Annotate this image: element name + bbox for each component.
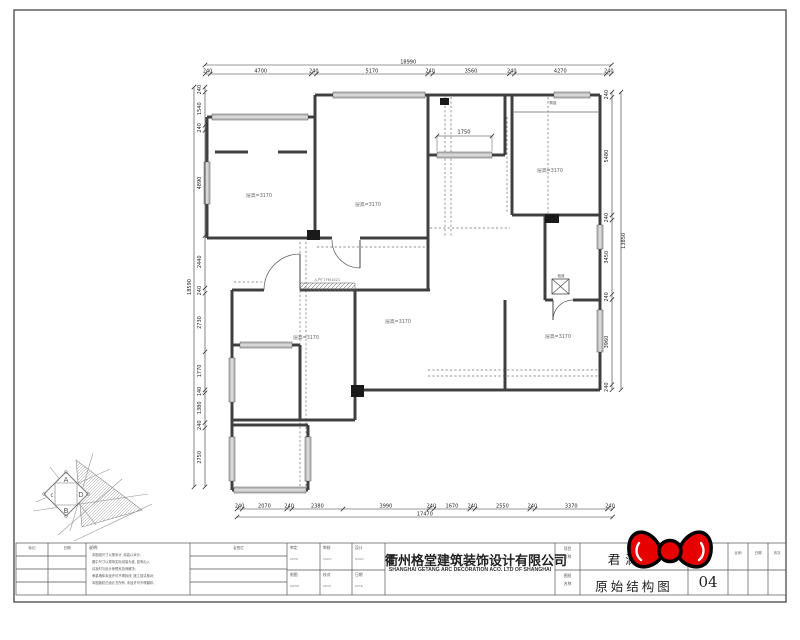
dim-label: 240 xyxy=(235,504,245,510)
dim-label: 240 xyxy=(604,292,610,302)
wall-layer xyxy=(207,95,600,490)
dim-label: 240 xyxy=(197,286,203,296)
dim-label: 3370 xyxy=(565,504,578,510)
notes-line: 请及时与设计师联系协商解决; xyxy=(92,566,136,571)
dim-label: 3450 xyxy=(604,251,610,264)
entry-note: 入户门 FM1021 xyxy=(314,277,340,282)
interior-dim-label: 1750 xyxy=(457,130,470,136)
flue-box xyxy=(552,279,569,294)
staff-cell-label: 审定 xyxy=(290,546,298,551)
bow-center-knot xyxy=(659,541,681,562)
dim-label: 2440 xyxy=(197,255,203,268)
staff-cell-label: 设计 xyxy=(355,546,363,551)
flue-label: 烟道 xyxy=(557,273,565,278)
room-label: 层高=3170 xyxy=(545,333,571,340)
dim-label: 240 xyxy=(528,504,538,510)
room-label: 层高=3170 xyxy=(537,167,563,174)
dim-label: 3990 xyxy=(380,504,393,510)
dim-label: 1670 xyxy=(446,504,459,510)
extra-col-label: 比例 xyxy=(728,551,748,556)
bow-right-lobe xyxy=(679,532,711,567)
notes-title: 说明: xyxy=(89,545,98,551)
dim-total: 18590 xyxy=(187,279,193,295)
notes-col2-header: 日期 xyxy=(48,546,86,551)
staff-cell-en: DSGN xyxy=(355,557,364,561)
bay-window-tag: 飘窗 xyxy=(549,100,557,105)
dim-label: 4270 xyxy=(554,69,567,75)
room-label: 层高=3170 xyxy=(355,201,381,208)
notes-line: 本图版权归设计方所有, 未经许可不得翻印。 xyxy=(92,580,156,585)
staff-cell-en: DRWN xyxy=(290,584,299,588)
company-name-en: SHANGHAI GETANG ARC DECORATION ACO. LTD … xyxy=(385,567,555,573)
staff-cell-label: 校对 xyxy=(323,573,331,578)
dim-label: 1540 xyxy=(197,102,203,115)
project-label: 名称 xyxy=(555,555,580,560)
dim-total: 17470 xyxy=(417,512,433,518)
staff-cell-label: 审核 xyxy=(323,546,331,551)
dim-label: 4890 xyxy=(197,177,203,190)
room-labels: 层高=3170 层高=3170 层高=3170 层高=3170 层高=3170 … xyxy=(246,100,571,341)
room-label: 层高=3170 xyxy=(385,318,411,325)
dim-label: 240 xyxy=(507,69,517,75)
room-label: 层高=3170 xyxy=(293,334,319,341)
staff-cell-en: APPD xyxy=(290,557,298,561)
dim-label: 240 xyxy=(604,90,610,100)
staff-cell-label: 制图 xyxy=(290,573,298,578)
staff-cell-en: PROF xyxy=(323,584,331,588)
staff-cell-en: CHKD xyxy=(323,557,332,561)
door-arcs xyxy=(264,240,573,320)
dim-label: 2750 xyxy=(197,451,203,464)
dim-label: 140 xyxy=(197,387,203,397)
window-layer xyxy=(204,92,603,493)
dim-label: 1770 xyxy=(197,365,203,378)
dim-label: 5170 xyxy=(366,69,379,75)
interior-dimension: 1750 xyxy=(435,130,494,152)
entry-hatch-strip xyxy=(300,283,355,290)
dim-label: 4700 xyxy=(254,69,267,75)
notes-line: 承重墙体未经许可不得拆改, 施工前请核对; xyxy=(92,573,154,578)
bow-left-lobe xyxy=(629,532,661,567)
dim-label: 2070 xyxy=(258,504,271,510)
logo-letter-b: B xyxy=(64,507,69,515)
dim-label: 240 xyxy=(604,69,614,75)
project-label: 项目 xyxy=(555,547,580,552)
dim-label: 2550 xyxy=(496,504,509,510)
dim-label: 240 xyxy=(604,382,610,392)
room-label: 层高=3170 xyxy=(246,192,272,199)
extra-col-label: 页次 xyxy=(768,551,786,556)
drawing-sheet: 1750 24047002405170240356024042702401899… xyxy=(0,0,800,640)
column-markers xyxy=(300,98,569,397)
notes-sign-header: 会签栏 xyxy=(190,546,287,551)
dim-label: 1380 xyxy=(197,401,203,414)
dim-label: 240 xyxy=(468,504,478,510)
dim-label: 240 xyxy=(309,69,319,75)
dim-label: 240 xyxy=(197,85,203,95)
beam-dashed-lines xyxy=(234,97,598,486)
dim-label: 240 xyxy=(284,504,294,510)
notes-line: 本图纸尺寸以毫米计, 标高以米计; xyxy=(92,552,141,557)
designer-logo: A D B c xyxy=(33,453,152,541)
staff-cell-label: 日期 xyxy=(355,573,363,578)
extra-col-label: 日期 xyxy=(748,551,768,556)
dim-label: 240 xyxy=(605,504,615,510)
dim-label: 3560 xyxy=(465,69,478,75)
logo-letter-a: A xyxy=(64,476,69,484)
dim-label: 3960 xyxy=(604,336,610,349)
notes-line: 图中尺寸以现场实际测量为准, 如有出入 xyxy=(92,559,150,564)
dim-label: 240 xyxy=(604,213,610,223)
drawing-label: 名称 xyxy=(555,582,580,587)
dim-label: 5480 xyxy=(604,150,610,163)
dim-label: 240 xyxy=(197,123,203,133)
dim-label: 240 xyxy=(427,504,437,510)
dim-label: 2380 xyxy=(311,504,324,510)
logo-letter-d: D xyxy=(78,491,83,499)
dim-label: 240 xyxy=(197,420,203,430)
logo-letter-c: c xyxy=(50,492,53,499)
dim-total: 13850 xyxy=(621,233,627,249)
dim-label: 240 xyxy=(425,69,435,75)
dim-label: 2730 xyxy=(197,316,203,329)
notes-col1-header: 标记 xyxy=(16,546,48,551)
bow-sticker xyxy=(622,523,718,579)
staff-cell-en: DATE xyxy=(355,584,363,588)
drawing-label: 图纸 xyxy=(555,574,580,579)
dim-label: 240 xyxy=(203,69,213,75)
dim-total: 18990 xyxy=(400,60,416,66)
